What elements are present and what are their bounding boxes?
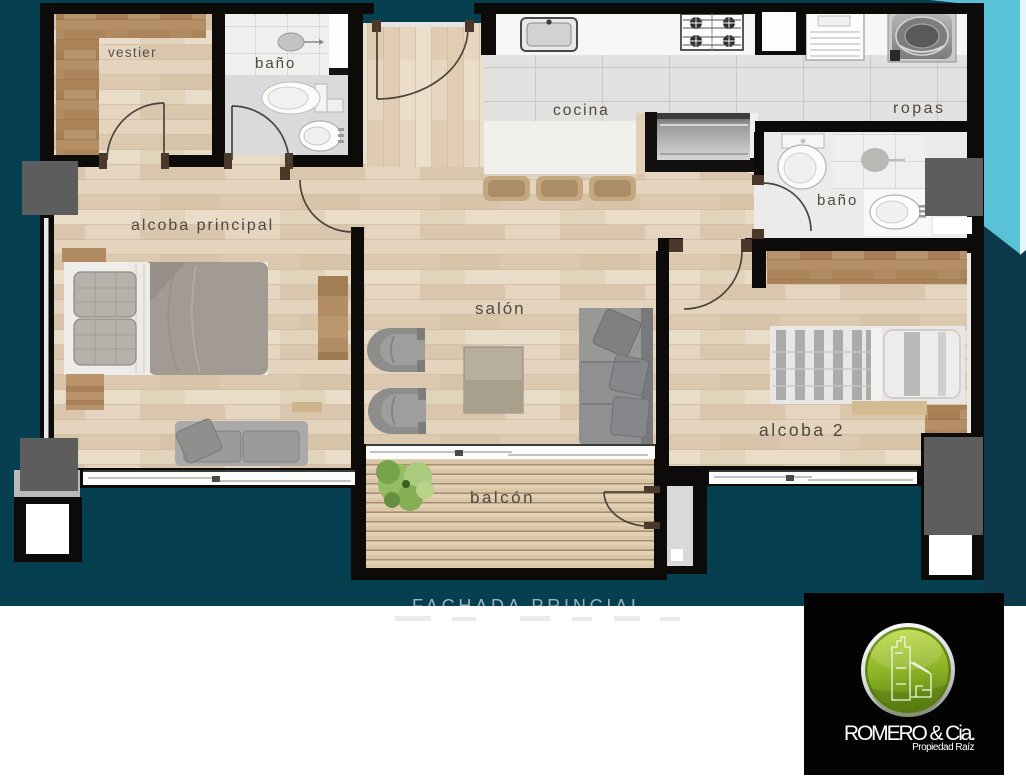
svg-text:baño: baño: [817, 192, 858, 209]
svg-text:baño: baño: [255, 55, 296, 72]
svg-text:cocina: cocina: [553, 102, 610, 119]
svg-text:balcón: balcón: [470, 488, 535, 507]
svg-text:alcoba principal: alcoba principal: [131, 217, 274, 234]
svg-text:vestier: vestier: [108, 45, 157, 60]
svg-text:alcoba 2: alcoba 2: [759, 420, 845, 440]
svg-text:ropas: ropas: [893, 100, 946, 117]
svg-text:Propiedad Raíz: Propiedad Raíz: [912, 742, 974, 753]
svg-text:salón: salón: [475, 299, 526, 318]
